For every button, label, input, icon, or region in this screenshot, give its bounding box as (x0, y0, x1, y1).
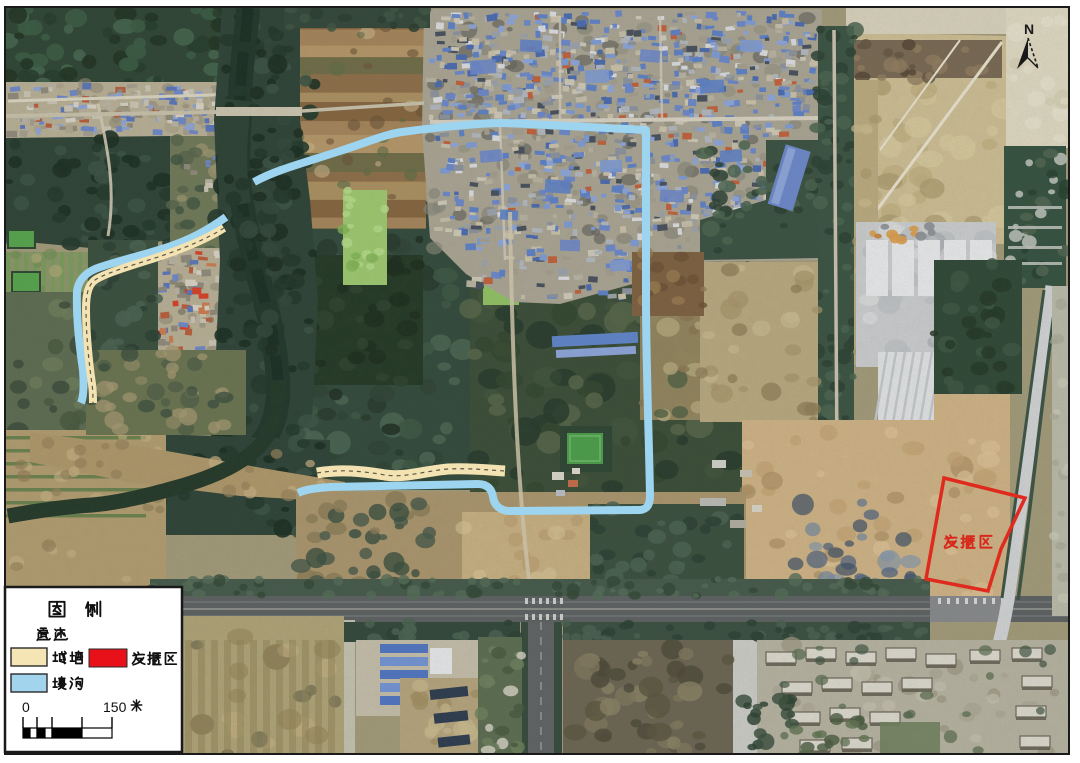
svg-text:150: 150 (103, 699, 127, 715)
svg-text:N: N (1024, 21, 1034, 37)
svg-text:0: 0 (22, 699, 30, 715)
